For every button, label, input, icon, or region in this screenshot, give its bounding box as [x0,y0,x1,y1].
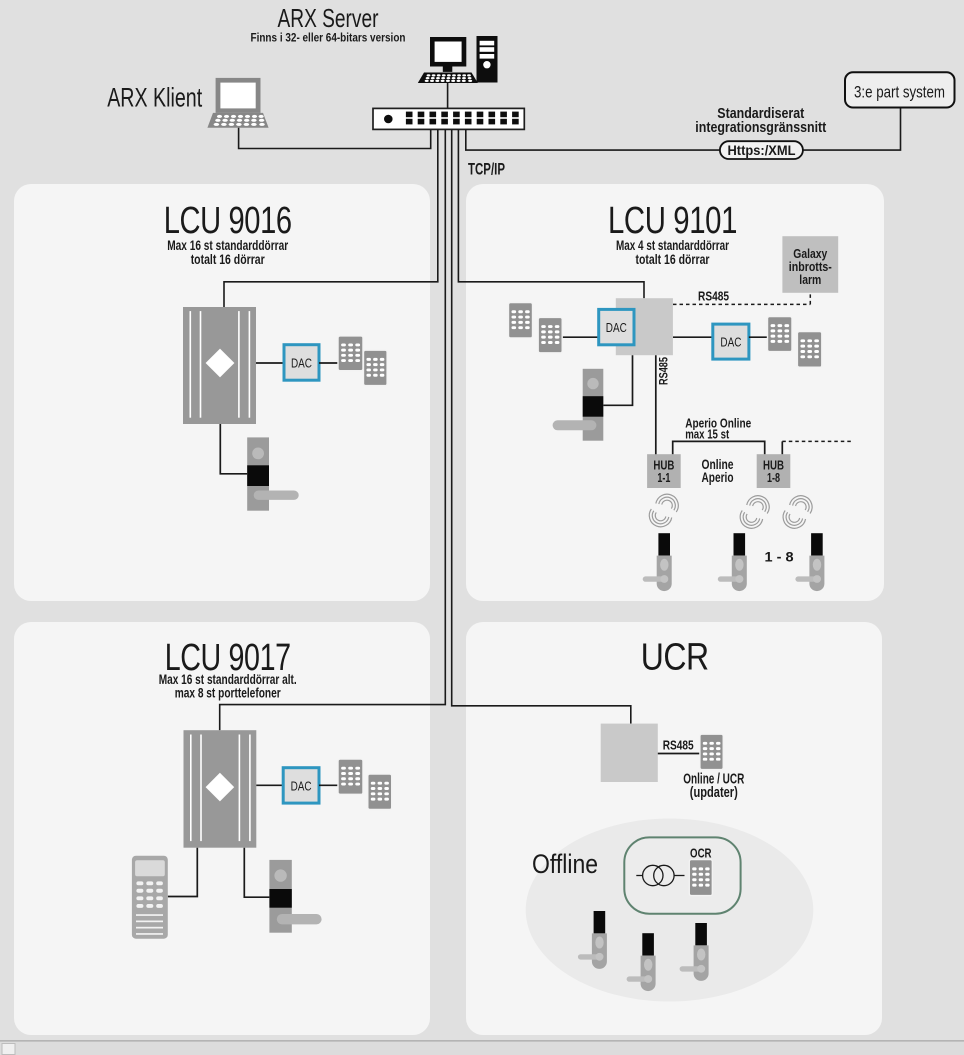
svg-text:Finns i 32- eller 64-bitars ve: Finns i 32- eller 64-bitars version [251,31,406,45]
svg-text:totalt 16 dörrar: totalt 16 dörrar [191,251,265,267]
svg-text:OCR: OCR [690,847,712,861]
svg-text:RS485: RS485 [698,289,729,304]
svg-text:max 8 st porttelefoner: max 8 st porttelefoner [175,685,281,701]
svg-text:RS485: RS485 [663,738,694,753]
svg-text:1 - 8: 1 - 8 [765,549,794,565]
svg-text:ARX Klient: ARX Klient [107,83,202,113]
svg-text:(updater): (updater) [690,785,738,801]
svg-text:Aperio: Aperio [702,470,734,485]
svg-text:ARX Server: ARX Server [278,3,379,33]
svg-text:DAC: DAC [720,336,741,350]
svg-text:totalt 16 dörrar: totalt 16 dörrar [636,251,710,267]
svg-text:Https:/XML: Https:/XML [728,142,796,158]
svg-text:max 15 st: max 15 st [685,427,729,442]
svg-text:LCU 9016: LCU 9016 [164,200,292,242]
svg-text:larm: larm [799,272,821,287]
svg-text:UCR: UCR [641,637,709,679]
svg-text:TCP/IP: TCP/IP [468,160,505,179]
svg-text:DAC: DAC [606,321,627,335]
svg-text:3:e part system: 3:e part system [854,83,945,102]
svg-text:DAC: DAC [291,780,312,794]
svg-text:1-1: 1-1 [657,471,670,485]
svg-text:LCU 9101: LCU 9101 [608,200,737,242]
svg-text:Offline: Offline [532,849,598,879]
svg-text:RS485: RS485 [657,357,671,385]
svg-text:integrationsgränssnitt: integrationsgränssnitt [695,119,826,136]
svg-text:1-8: 1-8 [767,471,780,485]
svg-text:DAC: DAC [291,357,312,371]
